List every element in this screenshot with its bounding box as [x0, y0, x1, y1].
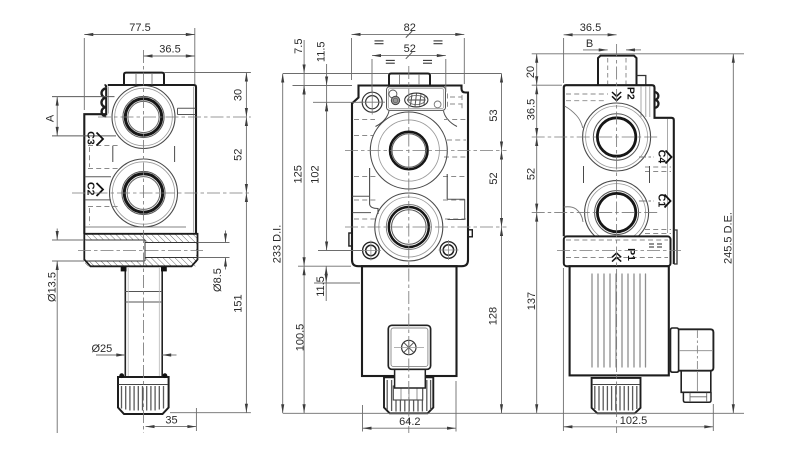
svg-text:A: A [45, 114, 57, 122]
svg-text:137: 137 [526, 292, 538, 310]
svg-text:64.2: 64.2 [399, 416, 420, 428]
svg-text:C3: C3 [85, 131, 97, 145]
svg-text:100.5: 100.5 [294, 324, 306, 352]
svg-text:20: 20 [525, 66, 537, 78]
svg-text:52: 52 [404, 43, 416, 55]
svg-text:Ø8.5: Ø8.5 [212, 268, 224, 292]
svg-text:52: 52 [232, 149, 244, 161]
svg-text:77.5: 77.5 [129, 22, 150, 34]
svg-text:151: 151 [232, 294, 244, 312]
svg-text:125: 125 [292, 165, 304, 183]
svg-text:B: B [586, 38, 593, 50]
svg-text:P1: P1 [625, 248, 637, 261]
svg-text:Ø25: Ø25 [92, 343, 113, 355]
svg-text:102.5: 102.5 [620, 415, 648, 427]
svg-text:53: 53 [488, 109, 500, 121]
svg-text:36.5: 36.5 [580, 22, 601, 34]
svg-text:11.5: 11.5 [315, 42, 327, 63]
svg-text:52: 52 [488, 172, 500, 184]
svg-text:82: 82 [404, 22, 416, 34]
svg-text:35: 35 [165, 415, 177, 427]
svg-text:11.5: 11.5 [315, 276, 327, 297]
svg-text:36.5: 36.5 [159, 44, 180, 56]
svg-text:30: 30 [232, 89, 244, 101]
svg-text:7.5: 7.5 [293, 39, 305, 54]
svg-text:102: 102 [310, 165, 322, 183]
svg-text:36.5: 36.5 [525, 99, 537, 120]
svg-text:128: 128 [488, 307, 500, 325]
svg-text:C2: C2 [85, 182, 97, 196]
svg-text:233 D.I.: 233 D.I. [272, 225, 284, 264]
svg-text:Ø13.5: Ø13.5 [46, 272, 58, 302]
svg-text:52: 52 [525, 168, 537, 180]
svg-text:245.5 D.E.: 245.5 D.E. [723, 212, 735, 264]
svg-text:P2: P2 [625, 87, 637, 100]
